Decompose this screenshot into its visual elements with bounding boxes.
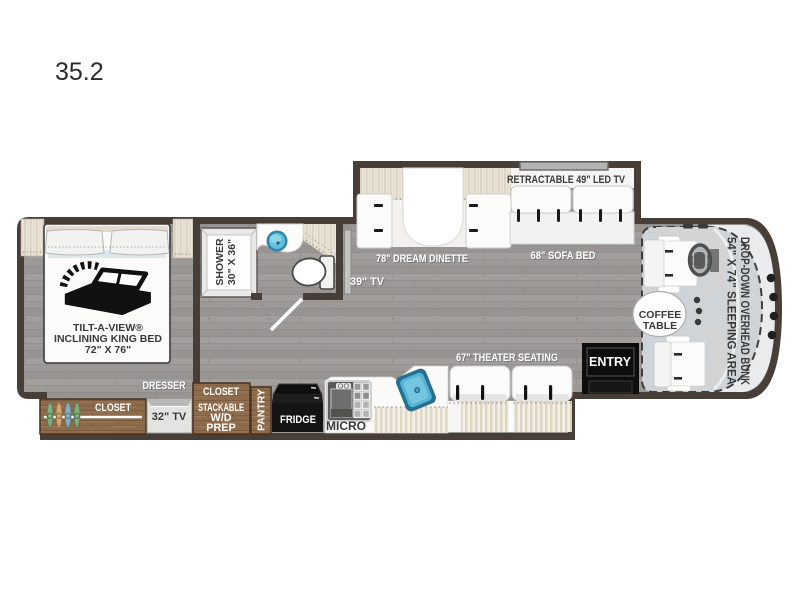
svg-text:DRESSER: DRESSER [143, 380, 186, 392]
svg-text:DROP-DOWN OVERHEAD BUNK: DROP-DOWN OVERHEAD BUNK [738, 237, 752, 385]
svg-text:CLOSET: CLOSET [203, 386, 239, 398]
svg-text:RETRACTABLE 49" LED TV: RETRACTABLE 49" LED TV [507, 174, 626, 186]
svg-text:SHOWER: SHOWER [214, 238, 226, 286]
svg-text:67" THEATER SEATING: 67" THEATER SEATING [456, 352, 558, 364]
svg-text:39" TV: 39" TV [350, 276, 385, 288]
svg-text:MICRO: MICRO [326, 419, 366, 433]
svg-text:68" SOFA BED: 68" SOFA BED [531, 250, 596, 262]
svg-text:PREP: PREP [206, 422, 235, 434]
svg-text:PANTRY: PANTRY [256, 389, 268, 431]
svg-text:CLOSET: CLOSET [95, 402, 131, 414]
svg-text:72" X 76": 72" X 76" [85, 344, 131, 356]
svg-text:32" TV: 32" TV [152, 411, 187, 423]
svg-text:35.2: 35.2 [55, 58, 104, 86]
svg-text:54" X 74" SLEEPING AREA: 54" X 74" SLEEPING AREA [725, 237, 739, 385]
svg-text:78" DREAM DINETTE: 78" DREAM DINETTE [376, 253, 468, 265]
svg-text:TABLE: TABLE [643, 320, 677, 332]
svg-text:ENTRY: ENTRY [589, 355, 632, 369]
svg-text:FRIDGE: FRIDGE [280, 414, 316, 426]
svg-text:30" X 36": 30" X 36" [226, 239, 238, 285]
